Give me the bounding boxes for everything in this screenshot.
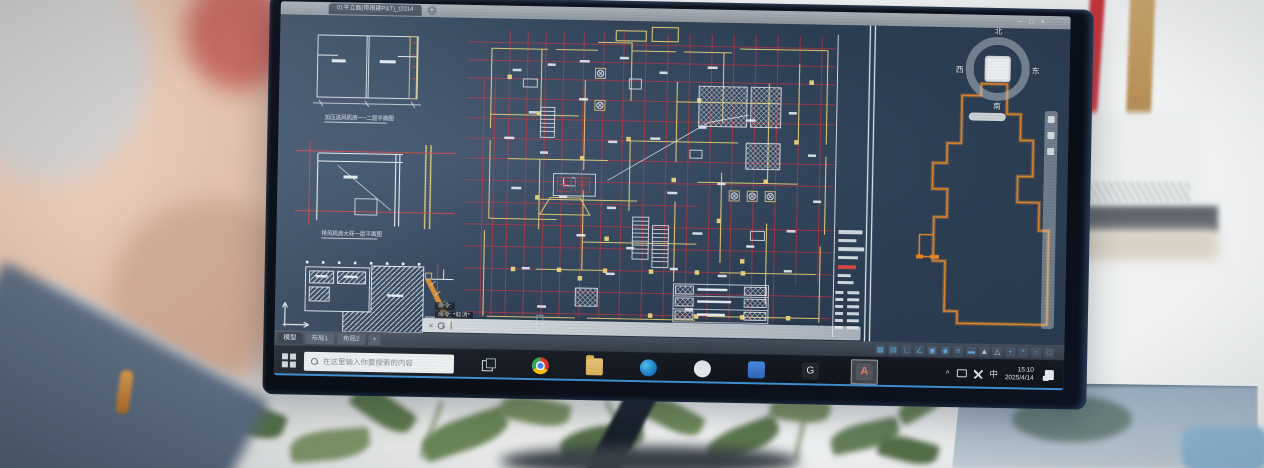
action-center-icon[interactable] bbox=[1043, 369, 1056, 381]
drawing-file-tab[interactable]: 01平立面(带报建P&T)_t2014 bbox=[329, 3, 422, 16]
screen: 01平立面(带报建P&T)_t2014 + – □ × bbox=[274, 1, 1071, 390]
tab-layout2[interactable]: 布局2 bbox=[337, 333, 366, 345]
cad-drawing: 加压送风机房一~二层平面图 排风机房大样一层平面图 bbox=[275, 14, 1071, 345]
window-sill bbox=[150, 398, 420, 444]
annotation-visibility-icon[interactable]: ▲ bbox=[979, 346, 989, 356]
detail-caption-mid: 排风机房大样一层平面图 bbox=[321, 229, 382, 239]
pan-icon[interactable] bbox=[1048, 116, 1055, 123]
dynamic-input-icon[interactable]: ≡ bbox=[953, 346, 963, 356]
tab-layout1[interactable]: 布局1 bbox=[305, 333, 334, 345]
leaf bbox=[168, 419, 242, 462]
taskbar-clock[interactable]: 15:10 2025/4/14 bbox=[1005, 366, 1034, 383]
taskbar-search[interactable]: 在这里输入你要搜索的内容 bbox=[304, 351, 454, 373]
monitor: 01平立面(带报建P&T)_t2014 + – □ × bbox=[262, 0, 1094, 410]
svg-text:加压送风机房一~二层平面图: 加压送风机房一~二层平面图 bbox=[325, 113, 395, 122]
workspace-switching-icon[interactable]: * bbox=[1018, 347, 1028, 357]
detail-caption-top: 加压送风机房一~二层平面图 bbox=[325, 113, 395, 124]
leaf bbox=[289, 427, 371, 464]
ime-indicator[interactable]: 中 bbox=[989, 368, 998, 380]
hidden-icons-chevron[interactable]: ^ bbox=[946, 369, 950, 378]
annotation-scale-icon[interactable]: + bbox=[1005, 347, 1015, 357]
shirt-collar bbox=[22, 279, 249, 431]
task-view-icon[interactable] bbox=[482, 358, 495, 370]
minimize-button[interactable]: – bbox=[1018, 15, 1022, 28]
legend-table bbox=[673, 284, 769, 324]
autoscale-icon[interactable]: △ bbox=[992, 346, 1002, 356]
chrome-icon[interactable] bbox=[532, 357, 549, 374]
ortho-mode-icon[interactable]: ∟ bbox=[901, 345, 911, 355]
search-icon bbox=[311, 357, 318, 364]
system-tray: ^ 中 15:10 2025/4/14 bbox=[945, 365, 1055, 383]
lineweight-icon[interactable]: ▬ bbox=[966, 346, 976, 356]
isolate-objects-icon[interactable]: ○ bbox=[1031, 347, 1041, 357]
grip-points bbox=[306, 261, 421, 266]
new-drawing-tab-button[interactable]: + bbox=[427, 6, 436, 15]
wood-stick bbox=[1126, 0, 1155, 120]
wall-glimpse bbox=[0, 0, 150, 180]
desk-shadow bbox=[500, 446, 800, 468]
orbit-icon[interactable] bbox=[1047, 148, 1054, 155]
search-placeholder-text: 在这里输入你要搜索的内容 bbox=[323, 356, 413, 369]
network-icon[interactable] bbox=[956, 369, 966, 377]
command-history-line: 命令: bbox=[435, 302, 455, 310]
restore-button[interactable]: □ bbox=[1029, 16, 1033, 29]
detail-top-left bbox=[313, 35, 422, 108]
glasses-temple bbox=[115, 369, 134, 414]
floor-plan-walls bbox=[483, 24, 829, 322]
app-light-icon[interactable] bbox=[694, 360, 711, 377]
app-blue-icon[interactable] bbox=[748, 361, 765, 378]
viewcube[interactable]: 北 西 东 南 bbox=[955, 26, 1041, 112]
grid-lines bbox=[463, 30, 836, 323]
viewcube-west-label[interactable]: 西 bbox=[956, 64, 964, 75]
viewcube-east-label[interactable]: 东 bbox=[1032, 66, 1040, 77]
blue-object-right bbox=[1182, 426, 1264, 468]
leaf bbox=[222, 397, 289, 446]
object-snap-icon[interactable]: ▣ bbox=[927, 345, 937, 355]
appliance-vent bbox=[1078, 182, 1190, 202]
app-g-icon[interactable]: G bbox=[802, 362, 819, 379]
grid-display-icon[interactable]: ▤ bbox=[888, 344, 898, 354]
add-layout-button[interactable]: + bbox=[369, 334, 381, 345]
autocad-icon[interactable]: A bbox=[856, 363, 873, 380]
cad-viewport[interactable]: 加压送风机房一~二层平面图 排风机房大样一层平面图 bbox=[275, 14, 1071, 345]
shelf-under bbox=[1068, 230, 1218, 260]
command-search-icon[interactable] bbox=[437, 322, 444, 329]
file-explorer-icon[interactable] bbox=[586, 358, 603, 375]
photo-scene: 01平立面(带报建P&T)_t2014 + – □ × bbox=[0, 0, 1264, 468]
hatched-cores bbox=[575, 84, 781, 310]
leaf bbox=[417, 405, 512, 463]
command-close-icon[interactable]: × bbox=[429, 321, 434, 330]
window-controls: – □ × bbox=[1018, 15, 1044, 29]
detail-mid-left bbox=[295, 141, 457, 230]
object-snap-tracking-icon[interactable]: ◉ bbox=[940, 345, 950, 355]
clock-date: 2025/4/14 bbox=[1005, 374, 1034, 383]
svg-text:排风机房大样一层平面图: 排风机房大样一层平面图 bbox=[321, 229, 382, 238]
polar-tracking-icon[interactable]: ∠ bbox=[914, 345, 924, 355]
status-icons-row: ▦ ▤ ∟ ∠ ▣ ◉ ≡ ▬ ▲ △ + * ○ □ bbox=[875, 344, 1054, 357]
leaf bbox=[828, 416, 902, 456]
zoom-icon[interactable] bbox=[1047, 132, 1054, 139]
viewcube-face bbox=[984, 56, 1010, 82]
clean-screen-icon[interactable]: □ bbox=[1044, 347, 1054, 357]
snap-mode-icon[interactable]: ▦ bbox=[875, 344, 885, 354]
shelf-edge bbox=[1068, 206, 1218, 232]
viewcube-south-label[interactable]: 南 bbox=[993, 101, 1001, 112]
viewcube-home-pill[interactable] bbox=[969, 112, 1006, 121]
volume-icon[interactable] bbox=[973, 369, 982, 378]
fan-symbols bbox=[593, 68, 777, 201]
start-button[interactable] bbox=[282, 353, 296, 367]
active-app-highlight bbox=[851, 359, 878, 385]
jacket bbox=[0, 261, 269, 468]
close-button[interactable]: × bbox=[1040, 16, 1044, 29]
leaf bbox=[876, 431, 940, 468]
tab-model[interactable]: 模型 bbox=[277, 332, 302, 343]
title-block-strip bbox=[832, 25, 875, 342]
edge-icon[interactable] bbox=[640, 359, 657, 376]
